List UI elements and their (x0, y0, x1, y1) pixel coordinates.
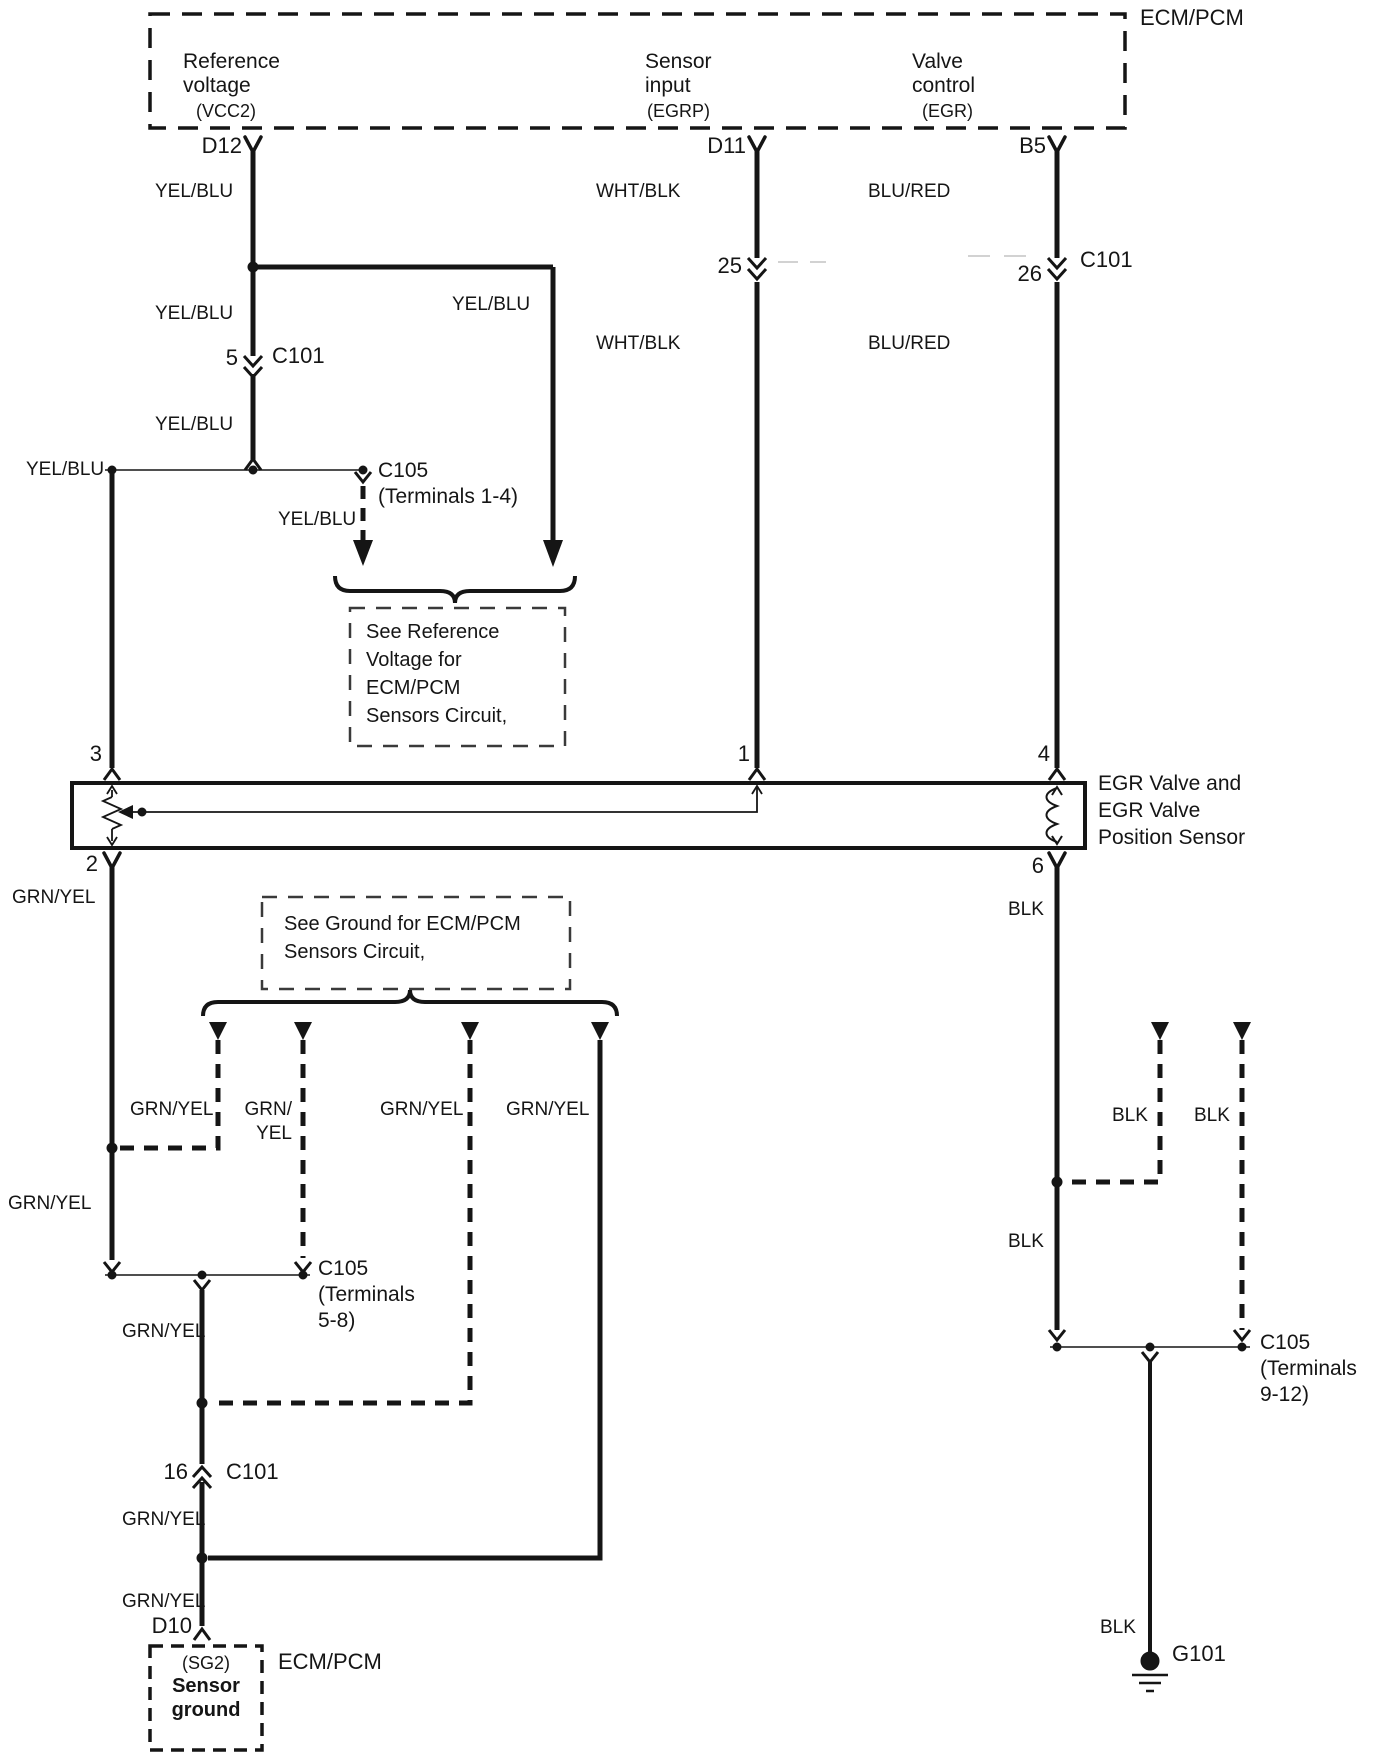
arrow-down-icon (353, 540, 373, 566)
wire-color-label: GRN/YEL (380, 1098, 463, 1121)
ecm-pin-function-ref: Reference voltage (183, 50, 280, 98)
note-reference-voltage: See Reference Voltage for ECM/PCM Sensor… (366, 618, 507, 730)
pin-fork-icon (245, 137, 1065, 152)
connector-c105-terminals-5-8: C105 (Terminals 5-8) (318, 1256, 415, 1334)
arrow-down-icon (543, 540, 563, 567)
ground-dot-icon (1141, 1652, 1159, 1670)
ecm-pin-signal-egr: (EGR) (922, 100, 973, 123)
splice-dot (249, 466, 257, 474)
junction-dot (248, 262, 258, 272)
wire-color-label: BLK (1112, 1104, 1148, 1127)
wire-ground-branch-3 (212, 1040, 470, 1403)
note-ground: See Ground for ECM/PCM Sensors Circuit, (284, 910, 521, 966)
wire-color-label: YEL/BLU (26, 458, 104, 481)
wire-end-connector-icon (1234, 1330, 1250, 1340)
pin-d11: D11 (686, 134, 746, 157)
connector-terminal-25: 25 (682, 254, 742, 277)
wire-color-label: YEL/BLU (278, 508, 356, 531)
pin-d12: D12 (182, 134, 242, 157)
wire-color-label: BLU/RED (868, 180, 950, 203)
pin-d10: D10 (132, 1614, 192, 1637)
egr-pin-6: 6 (1004, 854, 1044, 877)
wire-color-label: GRN/YEL (506, 1098, 589, 1121)
connector-26-c101-icon (1048, 258, 1066, 279)
splice-dot (299, 1271, 307, 1279)
wire-color-label: BLU/RED (868, 332, 950, 355)
ecm-title: ECM/PCM (1140, 6, 1244, 29)
brace-up-icon (203, 990, 617, 1016)
wire-end-connector-icon (194, 1280, 210, 1290)
branch-arrow-icon (209, 1022, 227, 1040)
branch-arrow-icon (1151, 1022, 1169, 1040)
ground-symbol-icon (1132, 1675, 1168, 1691)
pin-entry-connector-icon (194, 1629, 210, 1640)
wire-color-label: GRN/YEL (122, 1508, 205, 1531)
connector-c105-terminals-1-4: C105 (Terminals 1-4) (378, 458, 518, 510)
ground-g101-label: G101 (1172, 1642, 1226, 1665)
wire-color-label: GRN/YEL (8, 1192, 91, 1215)
splice-dot (198, 1271, 206, 1279)
wire-end-connector-icon (1049, 1330, 1065, 1340)
wire-color-label: GRN/YEL (12, 886, 95, 909)
splice-dot (1238, 1343, 1246, 1351)
ecm-bottom-title: ECM/PCM (278, 1650, 382, 1673)
egr-pin-1: 1 (710, 742, 750, 765)
wiper-arrow-icon (118, 805, 133, 819)
connector-terminal-16: 16 (148, 1460, 188, 1483)
splice-dot (1146, 1343, 1154, 1351)
ecm-pin-function-valve: Valve control (912, 50, 975, 98)
junction-dot (197, 1553, 207, 1563)
pin-entry-connector-icon (749, 769, 765, 780)
branch-arrow-icon (1233, 1022, 1251, 1040)
connector-25-icon (748, 258, 766, 279)
wire-color-label: BLK (1008, 1230, 1044, 1253)
branch-arrow-icon (294, 1022, 312, 1040)
wiper-dot (138, 808, 146, 816)
connector-c101: C101 (1080, 248, 1133, 271)
pin-b5: B5 (986, 134, 1046, 157)
pin-entry-connector-icon (1049, 769, 1065, 780)
wire-color-label: GRN/YEL (122, 1320, 205, 1343)
junction-dot (197, 1398, 207, 1408)
brace-down-icon (335, 576, 575, 603)
junction-dot (1052, 1177, 1062, 1187)
wire-color-label: GRN/ YEL (230, 1098, 292, 1146)
wire-color-label: GRN/YEL (130, 1098, 213, 1121)
wire-ground-branch-1 (118, 1040, 218, 1148)
ecm-pin-function-sensor: Sensor input (645, 50, 712, 98)
pin-entry-connector-icon (104, 769, 120, 780)
egr-pin-2: 2 (58, 852, 98, 875)
wiring-diagram: ECM/PCM Reference voltage (VCC2) Sensor … (0, 0, 1376, 1756)
ecm-sg2-signal: (SG2) (150, 1652, 262, 1675)
splice-dot (108, 1271, 116, 1279)
pin-fork-icon (104, 853, 1065, 868)
solenoid-coil-icon (1047, 787, 1063, 844)
wire-end-connector-icon (1142, 1352, 1158, 1362)
junction-dot (107, 1143, 117, 1153)
connector-c101: C101 (226, 1460, 279, 1483)
egr-pin-3: 3 (62, 742, 102, 765)
connector-terminal-5: 5 (198, 346, 238, 369)
connector-c105-terminals-9-12: C105 (Terminals 9-12) (1260, 1330, 1357, 1408)
wire-color-label: BLK (1100, 1616, 1136, 1639)
wire-color-label: YEL/BLU (155, 413, 233, 436)
wire-color-label: BLK (1008, 898, 1044, 921)
egr-valve-box (72, 783, 1085, 848)
connector-c101: C101 (272, 344, 325, 367)
egr-valve-label: EGR Valve and EGR Valve Position Sensor (1098, 770, 1245, 851)
wire-color-label: YEL/BLU (452, 293, 530, 316)
ecm-pin-signal-vcc2: (VCC2) (196, 100, 256, 123)
egr-pin-4: 4 (1010, 742, 1050, 765)
ecm-box-outline (150, 14, 1125, 128)
connector-terminal-26: 26 (982, 262, 1042, 285)
branch-arrow-icon (591, 1022, 609, 1040)
wire-color-label: BLK (1194, 1104, 1230, 1127)
branch-arrow-icon (461, 1022, 479, 1040)
wire-color-label: WHT/BLK (596, 180, 680, 203)
ecm-pin-signal-egrp: (EGRP) (647, 100, 710, 123)
splice-dot (1053, 1343, 1061, 1351)
wire-color-label: YEL/BLU (155, 180, 233, 203)
wire-color-label: WHT/BLK (596, 332, 680, 355)
splice-dot (359, 466, 367, 474)
wiper-arm-icon (132, 786, 762, 812)
potentiometer-icon (103, 786, 121, 845)
ecm-sensor-ground-label: Sensor ground (150, 1674, 262, 1722)
connector-5-c101-icon (244, 356, 262, 377)
wire-color-label: GRN/YEL (122, 1590, 205, 1613)
wire-color-label: YEL/BLU (155, 302, 233, 325)
